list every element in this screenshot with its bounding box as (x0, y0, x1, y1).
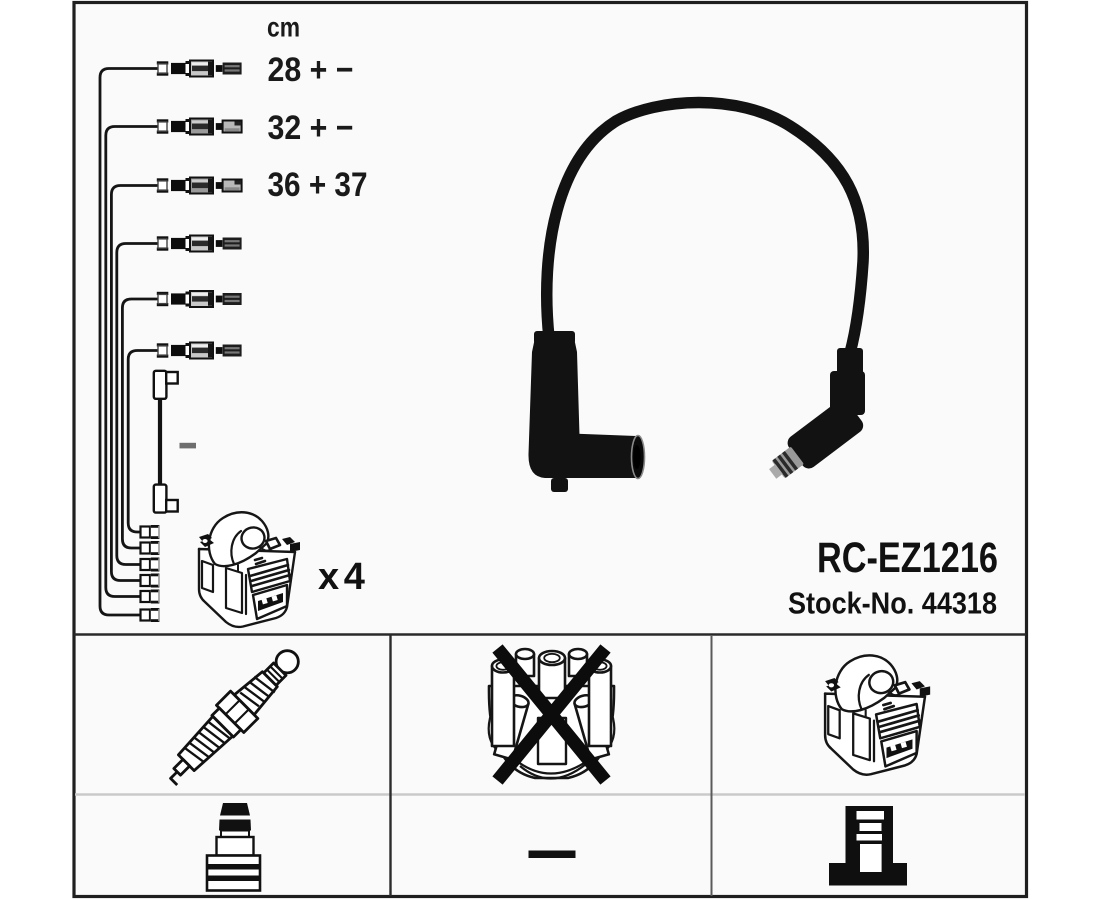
svg-text:32 + −: 32 + − (268, 109, 354, 147)
svg-text:cm: cm (267, 12, 300, 43)
svg-text:Stock-No. 44318: Stock-No. 44318 (788, 586, 997, 621)
svg-text:x 4: x 4 (318, 556, 365, 598)
svg-text:RC-EZ1216: RC-EZ1216 (817, 534, 998, 582)
svg-text:36 + 37: 36 + 37 (268, 166, 368, 204)
svg-text:28 + −: 28 + − (268, 51, 354, 89)
